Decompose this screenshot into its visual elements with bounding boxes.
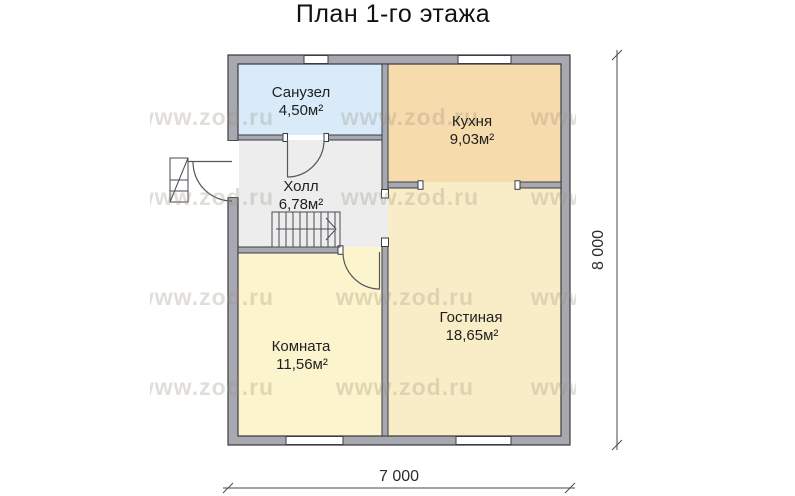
wall-central-lower [382,238,388,436]
living-area: 18,65м² [446,327,499,344]
watermark: www.zod.ru [335,374,474,400]
watermark: www.zod.ru [530,374,669,400]
watermark: www.zod.ru [530,184,669,210]
floor-plan-page: План 1-го этажа [0,0,795,496]
floor-plan-canvas: План 1-го этажа [0,0,795,496]
watermark: www.zod.ru [135,284,274,310]
wall-hall-bottom [238,247,343,253]
wall-central-upper [382,64,388,198]
kitchen-label: Кухня [452,113,492,130]
watermark: www.zod.ru [530,284,669,310]
wall-bathroom-left [238,135,287,140]
wall-bathroom-right [324,135,388,140]
bathroom-window [304,56,328,64]
bedroom-doorway-floor [343,247,382,253]
bathroom-label: Санузел [272,84,330,101]
kitchen-area: 9,03м² [450,131,495,148]
watermark: www.zod.ru [135,104,274,130]
dimension-height: 8 000 [590,50,622,450]
hall-area: 6,78м² [279,196,324,213]
dimension-height-label: 8 000 [590,230,607,270]
watermark: www.zod.ru [135,184,274,210]
hall-label: Холл [283,178,318,195]
living-window [456,437,511,445]
dimension-width-label: 7 000 [379,468,419,485]
watermark: www.zod.ru [530,104,669,130]
page-title: План 1-го этажа [296,0,490,28]
living-label: Гостиная [440,309,503,326]
watermark: www.zod.ru [335,284,474,310]
kitchen-window [458,56,511,64]
bedroom-label: Комната [272,338,331,355]
dimension-width: 7 000 [223,468,575,493]
bedroom-window [286,437,343,445]
watermark: www.zod.ru [135,374,274,400]
bathroom-area: 4,50м² [279,102,324,119]
watermark: www.zod.ru [340,184,479,210]
bedroom-area: 11,56м² [276,356,328,373]
